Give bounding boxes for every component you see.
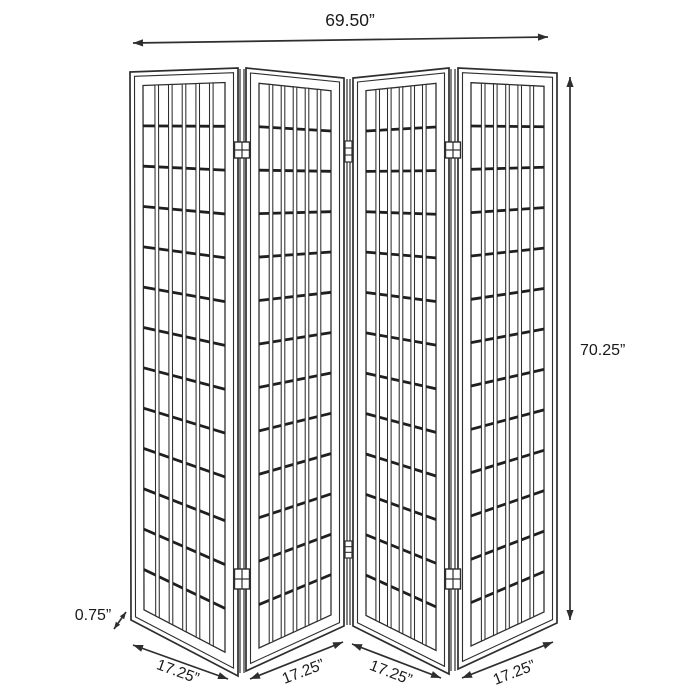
height-dimension-arrow: 70.25” (566, 77, 625, 620)
width-dimension-arrow: 69.50” (133, 10, 548, 47)
hinge-junction3-bottom (446, 569, 461, 589)
screen-panel-3 (353, 68, 449, 674)
screen-panel-1 (130, 68, 238, 676)
product-dimension-diagram: 69.50”70.25”17.25”17.25”17.25”17.25”0.75… (0, 0, 700, 700)
room-divider-dimension-drawing: 69.50”70.25”17.25”17.25”17.25”17.25”0.75… (0, 0, 700, 700)
thickness-dimension-label: 0.75” (75, 607, 111, 624)
panel-width-dimension-label-3: 17.25” (367, 657, 414, 689)
panel-width-dimension-label-2: 17.25” (280, 656, 327, 688)
hinge-junction1-top (235, 142, 250, 158)
hinge-junction1-bottom (235, 569, 250, 589)
hinge-junction3-top (446, 142, 461, 158)
hinge-junction2-bottom (345, 541, 352, 558)
thickness-dimension-arrow: 0.75” (75, 607, 126, 629)
height-dimension-label: 70.25” (580, 342, 625, 359)
screen-panel-4 (458, 68, 557, 669)
hinge-junction2-top (345, 141, 352, 162)
screen-panel-2 (246, 68, 344, 671)
width-dimension-label: 69.50” (325, 10, 375, 30)
panel-width-dimension-label-4: 17.25” (491, 657, 538, 689)
